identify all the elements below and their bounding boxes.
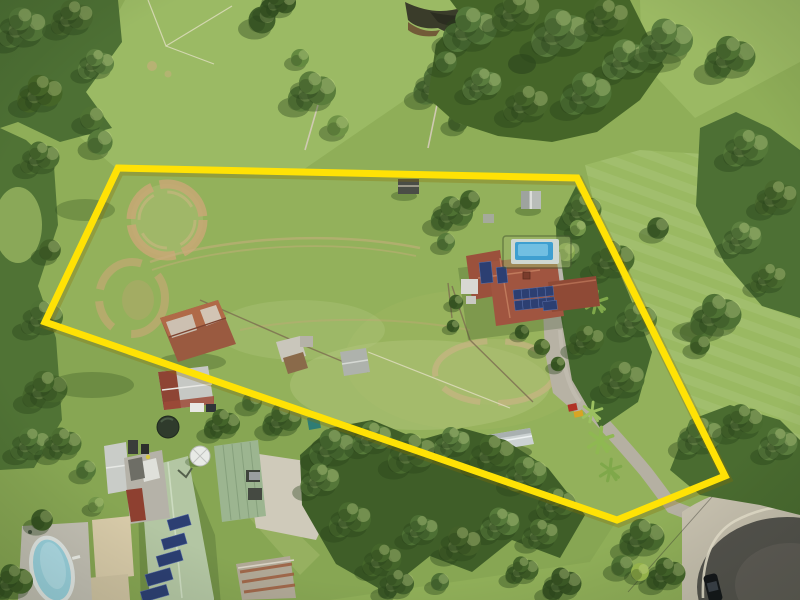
aerial-photo-canvas [0, 0, 800, 600]
aerial-photo [0, 0, 800, 600]
vignette [0, 0, 800, 600]
